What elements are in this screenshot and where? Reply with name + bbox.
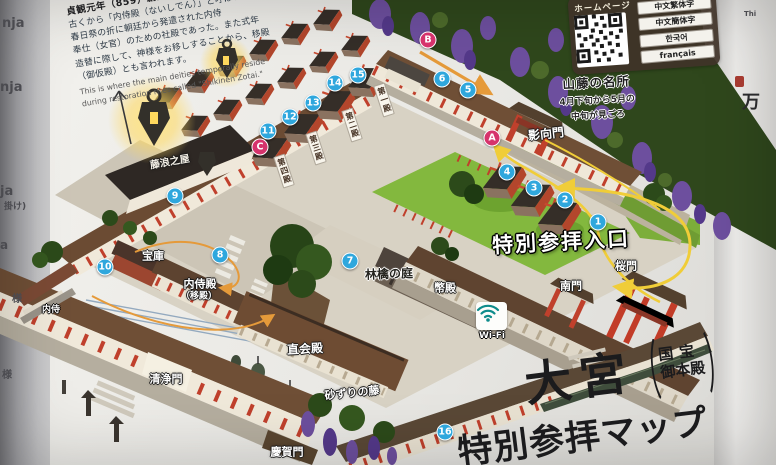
page-fragment: nja [2,16,24,31]
language-button: français [640,44,715,64]
language-buttons: 中文繁体字中文簡体字한국어français [636,0,714,66]
brochure-photo: Naishiden 貞観元年（859）創建 古くから「内侍殿（ないしでん）」と呼… [0,0,776,465]
page-fragment: 内侍 [42,302,60,315]
naishiden-label: 内侍殿 [184,279,217,290]
title-paren-close: ） [699,309,734,406]
marker-2: 2 [557,192,574,209]
page-fragment: nja [0,80,22,95]
marker-4: 4 [499,164,516,181]
heiden-label: 幣殿 [434,283,456,294]
page-fragment: ja [0,184,13,199]
marker-9: 9 [167,188,184,205]
marker-B: B [420,32,437,49]
nanmon-label: 南門 [560,281,582,292]
wisteria-note-line1: 4月下旬から5月の [559,91,635,108]
marker-3: 3 [526,180,543,197]
wisteria-note-title: 山藤の名所 [558,70,634,93]
marker-A: A [484,130,501,147]
ringo-garden-label: 林檎の庭 [365,267,413,281]
marker-8: 8 [212,247,229,264]
marker-12: 12 [282,109,299,126]
marker-C: C [252,139,269,156]
naoraiden-label: 直会殿 [287,342,324,356]
marker-13: 13 [305,95,322,112]
page-fragment: 様 [2,366,12,381]
page-fragment: 掛け) [4,199,26,212]
marker-15: 15 [350,67,367,84]
page-fragment: Thi [744,10,756,18]
page-fragment: 万 [742,88,760,114]
marker-7: 7 [342,253,359,270]
page-fragment: a [0,238,8,252]
marker-5: 5 [460,82,477,99]
marker-6: 6 [434,71,451,88]
treasure-house-label: 宝庫 [142,251,164,262]
sakuramon-label: 桜門 [615,261,637,272]
qr-code [574,12,630,68]
marker-14: 14 [327,75,344,92]
wifi-label: Wi-Fi [479,331,505,341]
seijomon-label: 清浄門 [150,374,183,385]
wifi-icon [476,302,507,330]
yogo-gate-label: 影向門 [527,126,564,142]
utsushidono-label: （移殿） [181,293,217,302]
marker-10: 10 [97,259,114,276]
homepage-qr-panel: ホームページ [567,0,720,75]
title-subname: 国宝 御本殿 [657,341,706,382]
page-fragment: 様 [12,290,22,305]
right-page-red-tag [735,76,744,87]
wisteria-note: 山藤の名所 4月下旬から5月の 中旬が見ごろ [558,70,636,123]
marker-11: 11 [260,123,277,140]
keigamon-label: 慶賀門 [271,447,304,458]
marker-16: 16 [437,424,454,441]
